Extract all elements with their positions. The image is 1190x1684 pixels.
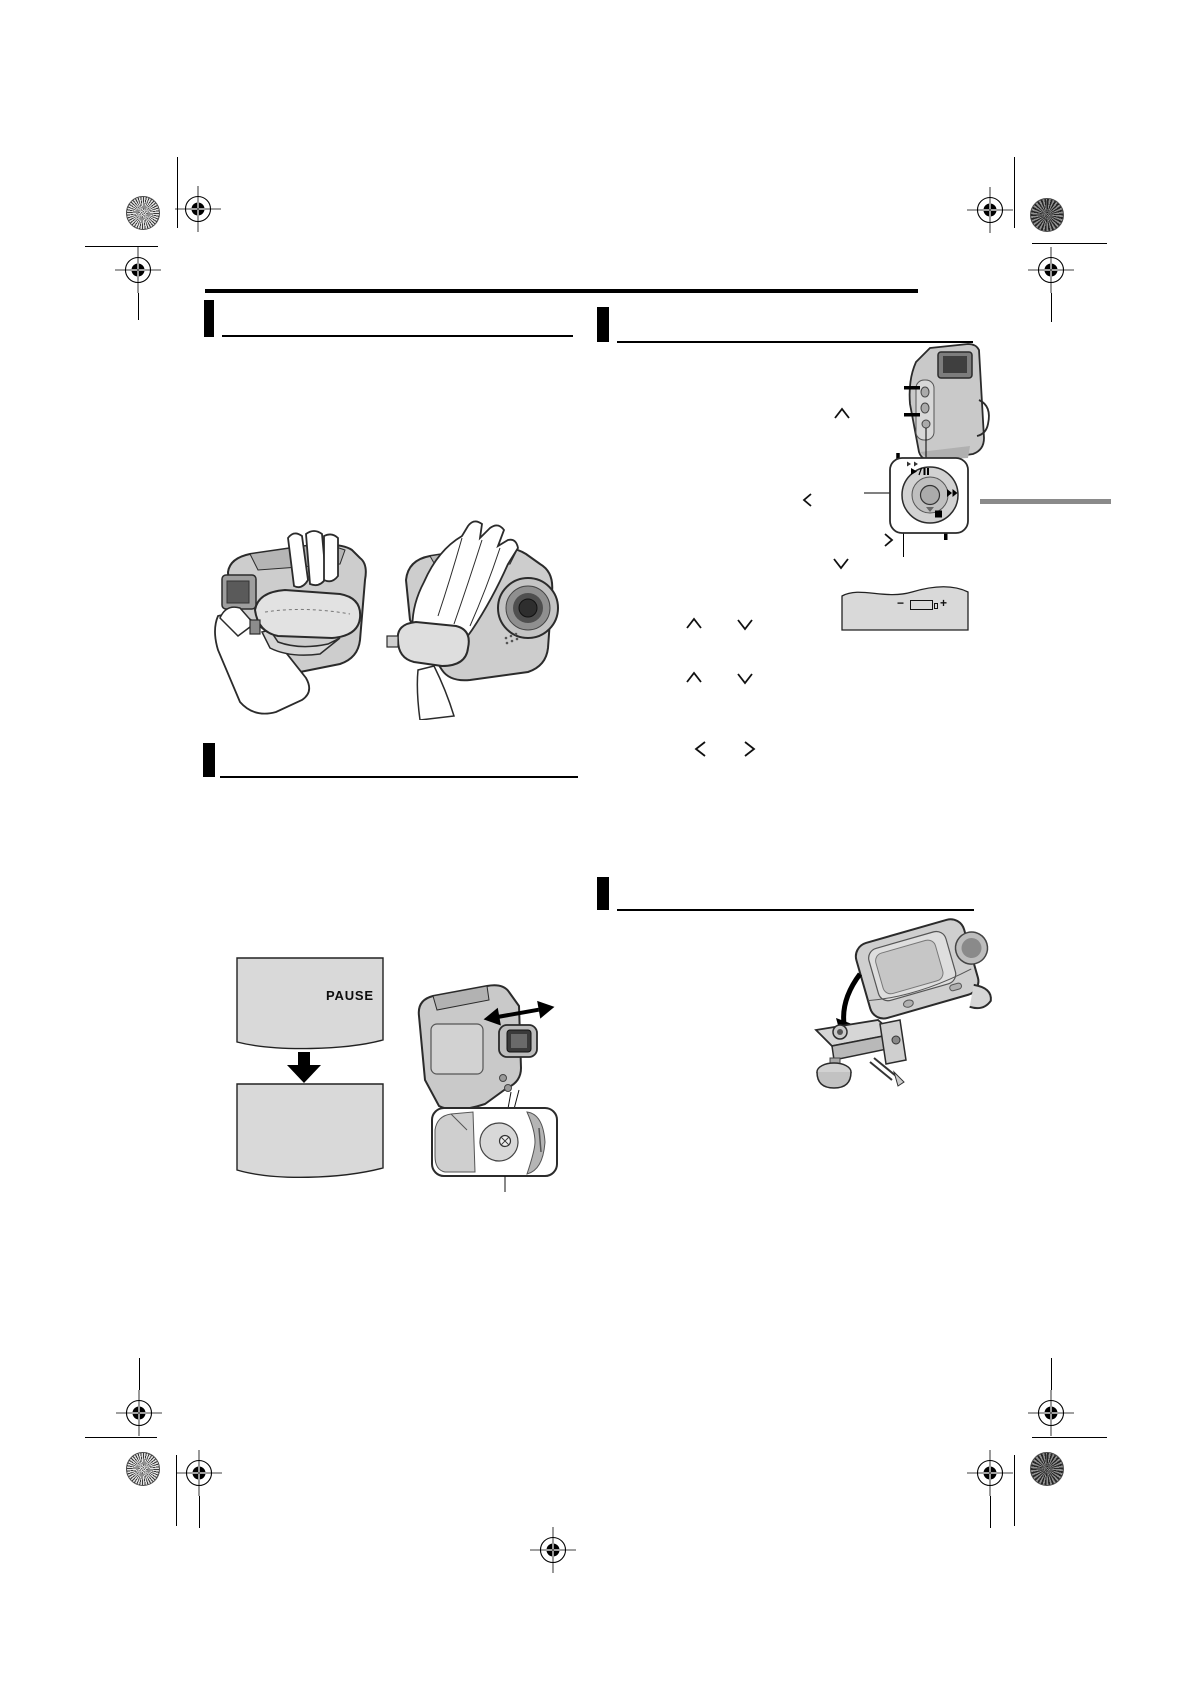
crop-line [1032, 243, 1107, 244]
color-starburst-mark [126, 1452, 160, 1486]
viewfinder-eyecup-icon [222, 575, 256, 609]
button [921, 403, 929, 413]
crop-line [85, 1437, 157, 1438]
crop-line [199, 1496, 200, 1528]
camcorder-rear-view [910, 344, 989, 460]
tripod-mount-illustration [800, 912, 1020, 1097]
chevron-left-icon [804, 494, 811, 506]
fingers [288, 531, 338, 587]
button [921, 387, 929, 397]
registration-mark [1027, 1389, 1075, 1437]
viewfinder-adjust-illustration [415, 980, 575, 1194]
crop-line [138, 293, 139, 320]
chevron-down-icon [737, 619, 753, 631]
crop-line [1051, 293, 1052, 322]
battery-plus-label: + [940, 596, 947, 610]
battery-display-screen [840, 582, 970, 632]
display-screen-blank [236, 1083, 384, 1182]
display-screen-pause [236, 957, 384, 1053]
chevron-up-icon [686, 617, 702, 629]
camcorder-bottom-view [853, 912, 1004, 1037]
section-header-underline [222, 335, 573, 337]
leader-line [904, 386, 920, 390]
registration-mark [966, 186, 1014, 234]
manual-page: − + PAUSE [0, 0, 1190, 1684]
camcorder-front-grip [387, 521, 558, 720]
leader-line [904, 413, 920, 417]
registration-mark [115, 1389, 163, 1437]
control-diagram [780, 340, 1040, 580]
joystick-knob [921, 486, 940, 505]
pause-indicator-label: PAUSE [326, 988, 374, 1003]
lens-icon [498, 578, 558, 638]
section-header-underline [617, 909, 974, 911]
crop-line [1051, 1358, 1052, 1390]
registration-mark [966, 1449, 1014, 1497]
section-header-underline [220, 776, 578, 778]
registration-mark [114, 246, 162, 294]
section-header-bar [203, 743, 215, 777]
registration-mark [529, 1526, 577, 1574]
chevron-up-icon [835, 409, 849, 418]
color-starburst-mark [126, 196, 160, 230]
grip-illustration [210, 520, 580, 720]
section-header-bar [204, 300, 214, 337]
chevron-down-icon [737, 673, 753, 685]
battery-icon [910, 600, 933, 610]
registration-mark [175, 1449, 223, 1497]
dioptre-dial-inset [432, 1108, 557, 1176]
registration-mark [1027, 246, 1075, 294]
stop-icon [935, 511, 942, 518]
crop-line [990, 1496, 991, 1528]
button [922, 420, 930, 428]
crop-line [139, 1358, 140, 1390]
page-top-rule [205, 289, 918, 293]
crop-line [1014, 157, 1015, 228]
chevron-up-icon [686, 671, 702, 683]
color-starburst-mark [1030, 1452, 1064, 1486]
chevron-right-icon [744, 741, 756, 757]
joystick-panel [890, 458, 968, 533]
chevron-down-icon [834, 559, 848, 568]
tripod-adapter [816, 1020, 906, 1088]
battery-icon-tip [934, 603, 938, 609]
grip-strap-front [387, 622, 469, 666]
crop-line [1014, 1455, 1015, 1526]
camcorder-rear-grip [215, 531, 366, 714]
chevron-left-icon [694, 741, 706, 757]
section-header-bar [597, 877, 609, 910]
section-header-bar [597, 307, 609, 342]
chevron-right-icon [885, 534, 892, 546]
color-starburst-mark [1030, 198, 1064, 232]
viewfinder-eyecup [499, 1025, 537, 1057]
battery-minus-label: − [897, 596, 904, 610]
crop-line [1032, 1437, 1107, 1438]
down-arrow-icon [287, 1052, 321, 1084]
registration-mark [174, 185, 222, 233]
